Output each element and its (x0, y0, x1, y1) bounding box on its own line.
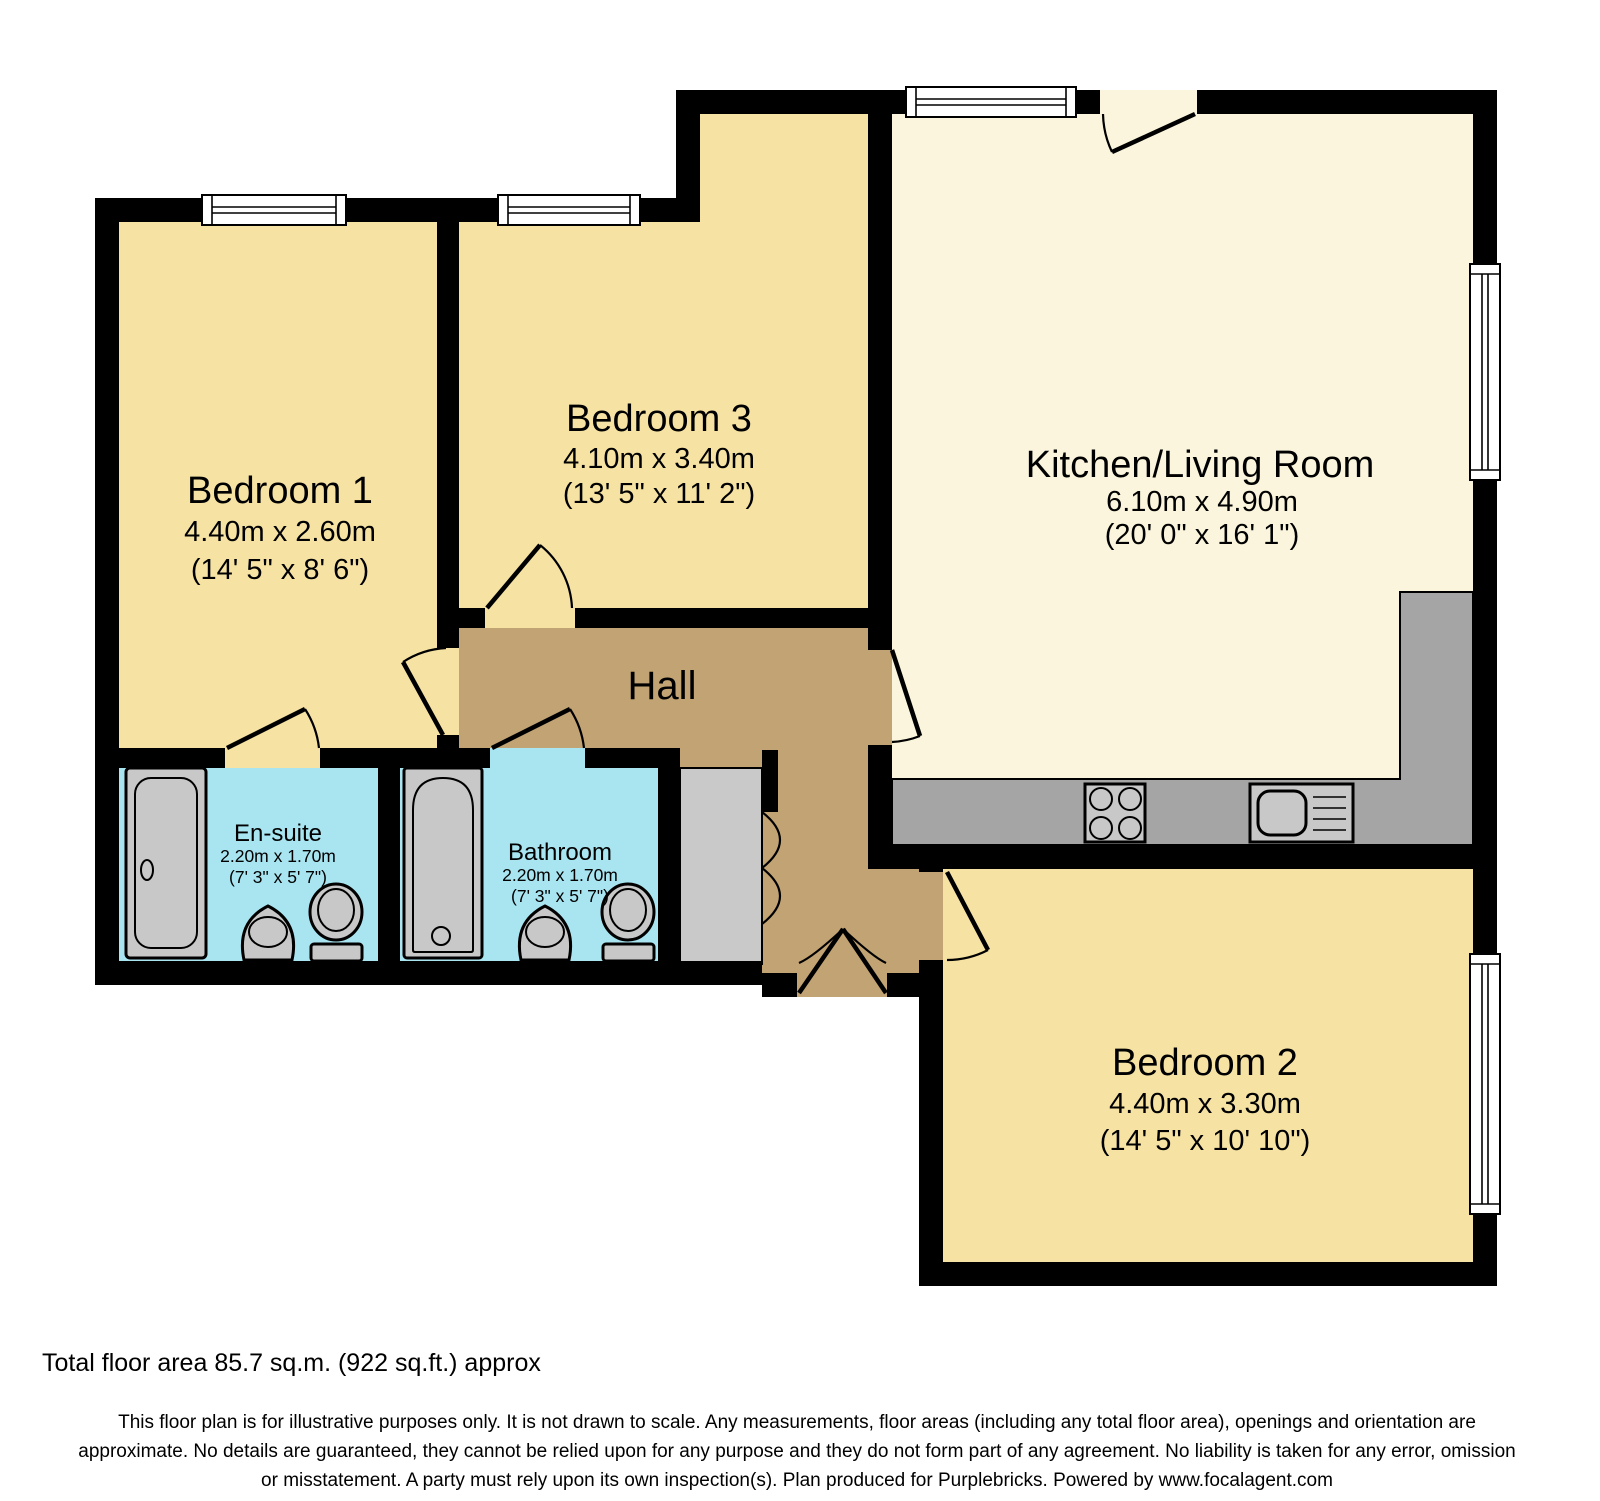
ensuite-dim-imperial: (7' 3" x 5' 7") (229, 867, 327, 887)
bedroom2-dim-metric: 4.40m x 3.30m (1109, 1088, 1301, 1120)
bathtub-icon-ensuite (126, 768, 206, 958)
bedroom3-dim-imperial: (13' 5" x 11' 2") (563, 478, 755, 510)
kitchen-window-icon (906, 87, 1076, 117)
bathtub-icon-bathroom (404, 768, 482, 958)
disclaimer-line-3: or misstatement. A party must rely upon … (261, 1470, 1333, 1491)
kitchen-dim-imperial: (20' 0" x 16' 1") (1105, 519, 1299, 551)
bedroom3-floor (459, 114, 868, 608)
bedroom1-dim-metric: 4.40m x 2.60m (184, 516, 376, 548)
footer: Total floor area 85.7 sq.m. (922 sq.ft.)… (42, 1349, 1516, 1491)
bedroom2-label: Bedroom 2 (1112, 1042, 1298, 1084)
bedroom2-dim-imperial: (14' 5" x 10' 10") (1100, 1125, 1311, 1157)
bedroom3-door-opening (485, 608, 575, 628)
disclaimer-line-2: approximate. No details are guaranteed, … (78, 1441, 1515, 1462)
cupboard (680, 768, 762, 964)
kitchen-door-opening (868, 650, 892, 745)
sink-icon (1250, 784, 1353, 842)
bedroom1-window-icon (202, 195, 346, 225)
bedroom2-window-icon (1470, 954, 1500, 1214)
kitchen-label: Kitchen/Living Room (1026, 444, 1375, 486)
balcony-door-opening (1100, 90, 1197, 114)
ensuite-door-opening (225, 748, 320, 768)
bedroom2-door-opening (919, 872, 943, 960)
bedroom3-label: Bedroom 3 (566, 398, 752, 440)
bathroom-door-opening (490, 748, 585, 768)
bedroom1-label: Bedroom 1 (187, 470, 373, 512)
bedroom3-dim-metric: 4.10m x 3.40m (563, 443, 755, 475)
total-floor-area: Total floor area 85.7 sq.m. (922 sq.ft.)… (42, 1349, 541, 1377)
bedroom3-window-icon (498, 195, 640, 225)
ensuite-label: En-suite (234, 820, 322, 847)
hall-label: Hall (628, 664, 697, 708)
kitchen-dim-metric: 6.10m x 4.90m (1106, 486, 1298, 518)
bathroom-label: Bathroom (508, 839, 612, 866)
toilet-icon-bathroom (602, 884, 654, 961)
hob-icon (1085, 784, 1145, 842)
bathroom-dim-imperial: (7' 3" x 5' 7") (511, 886, 609, 906)
ensuite-dim-metric: 2.20m x 1.70m (220, 846, 336, 866)
floor-plan-page: Bedroom 1 4.40m x 2.60m (14' 5" x 8' 6")… (0, 0, 1600, 1501)
bedroom1-door-opening (437, 648, 459, 735)
bathroom-dim-metric: 2.20m x 1.70m (502, 865, 618, 885)
bedroom1-dim-imperial: (14' 5" x 8' 6") (191, 554, 369, 586)
kitchen-side-window-icon (1470, 264, 1500, 480)
toilet-icon-ensuite (310, 884, 362, 961)
floor-plan-drawing: Bedroom 1 4.40m x 2.60m (14' 5" x 8' 6")… (0, 0, 1600, 1501)
disclaimer-line-1: This floor plan is for illustrative purp… (118, 1412, 1476, 1433)
